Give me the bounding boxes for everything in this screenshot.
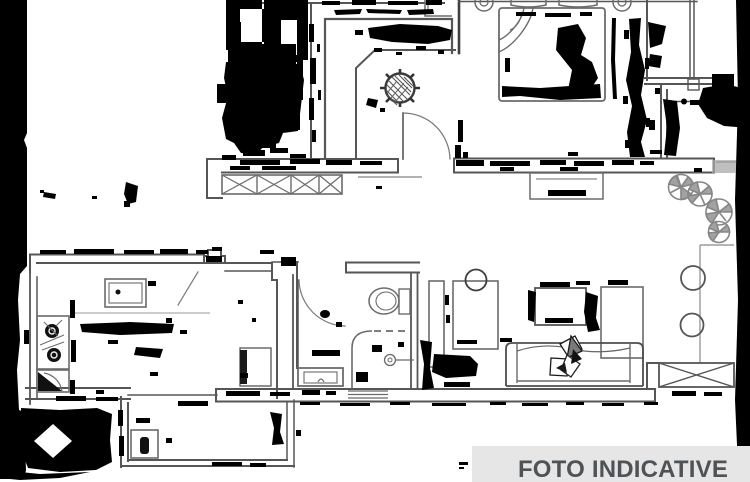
svg-text:FOTO INDICATIVE: FOTO INDICATIVE (518, 456, 728, 482)
